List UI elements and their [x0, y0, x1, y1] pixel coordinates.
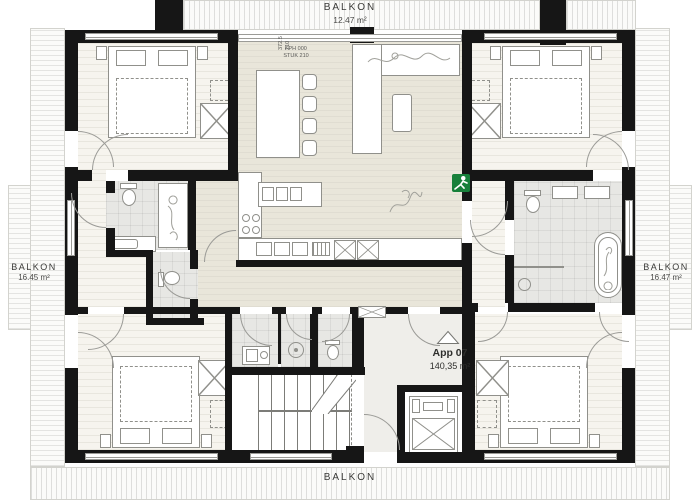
- pillow: [550, 428, 580, 444]
- sink-icon: [292, 242, 308, 256]
- wall: [278, 314, 281, 364]
- wall: [190, 250, 198, 269]
- wall: [65, 30, 78, 131]
- balcony-left-label: BALKON 16.45 m²: [4, 262, 64, 283]
- toilet-icon: [526, 196, 540, 213]
- balcony-left-bulge: [8, 185, 31, 330]
- nightstand: [197, 46, 208, 60]
- wall: [440, 307, 462, 314]
- cabinet-icon: [357, 240, 379, 260]
- sink-icon: [552, 186, 578, 199]
- wall: [272, 307, 286, 314]
- person-art: [160, 188, 186, 244]
- door-note-line2: STUK 210: [266, 53, 326, 60]
- cabinet-icon: [334, 240, 356, 260]
- window: [85, 453, 218, 460]
- elevator-machine: [447, 399, 455, 413]
- wall: [106, 250, 148, 257]
- sink-icon: [584, 186, 610, 199]
- pillow: [552, 50, 582, 66]
- kitchen-sink-icon: [276, 187, 288, 201]
- washing-machine-icon: [260, 351, 268, 359]
- wall: [508, 303, 595, 312]
- decor-art: [382, 186, 426, 218]
- stove-burner-icon: [242, 214, 250, 222]
- wall: [462, 243, 472, 307]
- wall: [312, 307, 322, 314]
- wall: [462, 170, 593, 181]
- window: [625, 200, 633, 256]
- apartment-area: 140,35 m²: [414, 361, 486, 373]
- pillow: [510, 50, 540, 66]
- stove-grate-icon: [312, 242, 330, 256]
- wall: [128, 170, 238, 181]
- nightstand: [96, 46, 107, 60]
- nightstand: [488, 434, 499, 448]
- shower-drain-icon: [518, 278, 531, 291]
- elevator-machine: [412, 399, 420, 413]
- coffee-table: [392, 94, 412, 132]
- dining-table: [256, 70, 300, 158]
- pillow: [162, 428, 192, 444]
- wall: [629, 303, 635, 312]
- wall: [622, 368, 635, 463]
- pillow: [508, 428, 538, 444]
- window: [484, 33, 617, 40]
- balcony-right-deck: [635, 28, 670, 467]
- washing-machine-icon: [246, 349, 258, 362]
- emergency-exit-icon: [452, 174, 470, 192]
- blanket: [116, 78, 188, 134]
- balcony-top-area: 12.47 m²: [290, 15, 410, 26]
- wall: [472, 303, 478, 312]
- wall: [188, 181, 196, 250]
- wall: [346, 446, 364, 463]
- sink-icon: [256, 242, 272, 256]
- wall: [225, 367, 365, 375]
- chair: [302, 96, 317, 112]
- sink-icon: [112, 239, 138, 249]
- nightstand: [591, 46, 602, 60]
- kitchen-sink-icon: [290, 187, 302, 201]
- wardrobe-icon: [468, 103, 501, 139]
- stove-burner-icon: [252, 226, 260, 234]
- pillow: [158, 50, 188, 66]
- wall: [155, 0, 183, 30]
- person-art: [364, 48, 454, 72]
- nightstand: [201, 434, 212, 448]
- stairs-break-line: [312, 374, 356, 414]
- nightstand: [490, 46, 501, 60]
- elevator-machine: [423, 402, 443, 411]
- wall: [106, 181, 115, 193]
- balcony-glass-door: [238, 34, 462, 42]
- apartment-name: App 07: [414, 347, 486, 361]
- balcony-top-label: BALKON 12.47 m²: [290, 2, 410, 25]
- chair: [302, 74, 317, 90]
- wall: [228, 36, 238, 176]
- corridor: [196, 267, 467, 307]
- wall: [236, 260, 467, 267]
- chair: [302, 140, 317, 156]
- stairs-railing: [351, 374, 352, 450]
- blanket: [120, 366, 192, 422]
- door-note-line1: FPH 000: [266, 46, 326, 53]
- balcony-left-deck: [30, 28, 65, 467]
- window: [85, 33, 218, 40]
- shower-partition: [514, 266, 564, 268]
- wall: [65, 307, 88, 314]
- balcony-right-area: 16.47 m²: [636, 273, 696, 283]
- wall: [622, 30, 635, 131]
- balcony-right-name: BALKON: [636, 262, 696, 273]
- stove-burner-icon: [252, 214, 260, 222]
- balcony-bottom-name: BALKON: [290, 472, 410, 485]
- balcony-bottom-label: BALKON: [290, 472, 410, 485]
- wall: [505, 255, 514, 303]
- wall: [462, 307, 475, 460]
- balcony-left-name: BALKON: [4, 262, 64, 273]
- cabinet-icon: [358, 306, 386, 318]
- window: [250, 453, 332, 460]
- balcony-top-name: BALKON: [290, 2, 410, 15]
- wall: [78, 170, 92, 181]
- floor-plan: BALKON 12.47 m² BALKON 16.45 m² BALKON 1…: [0, 0, 700, 500]
- person-art: [599, 240, 617, 290]
- balcony-left-area: 16.45 m²: [4, 273, 64, 283]
- wall: [65, 368, 78, 463]
- wall: [629, 170, 635, 181]
- nightstand: [100, 434, 111, 448]
- wall: [225, 307, 232, 450]
- wall: [397, 385, 470, 392]
- toilet-icon: [327, 345, 339, 360]
- wall: [397, 452, 467, 463]
- wall: [124, 307, 240, 314]
- kitchen-sink-icon: [262, 187, 274, 201]
- window: [484, 453, 617, 460]
- blanket: [508, 366, 580, 422]
- chair: [302, 118, 317, 134]
- apartment-label: App 07 140,35 m²: [414, 347, 486, 372]
- hall-left-lower: [78, 257, 146, 307]
- door-note: FPH 000 STUK 210: [266, 46, 326, 60]
- toilet-icon: [122, 189, 136, 206]
- shower-drain-dot: [294, 348, 298, 352]
- sink-icon: [274, 242, 290, 256]
- balcony-right-label: BALKON 16.47 m²: [636, 262, 696, 283]
- closet-shelf: [477, 400, 497, 428]
- pillow: [116, 50, 146, 66]
- balcony-right-bulge: [669, 185, 692, 330]
- stove-burner-icon: [242, 226, 250, 234]
- elevator-car-icon: [412, 418, 455, 450]
- nightstand: [589, 434, 600, 448]
- pillow: [120, 428, 150, 444]
- balcony-neighbor-deck: [566, 0, 636, 30]
- triangle-marker-icon: [436, 330, 460, 345]
- blanket: [510, 78, 582, 134]
